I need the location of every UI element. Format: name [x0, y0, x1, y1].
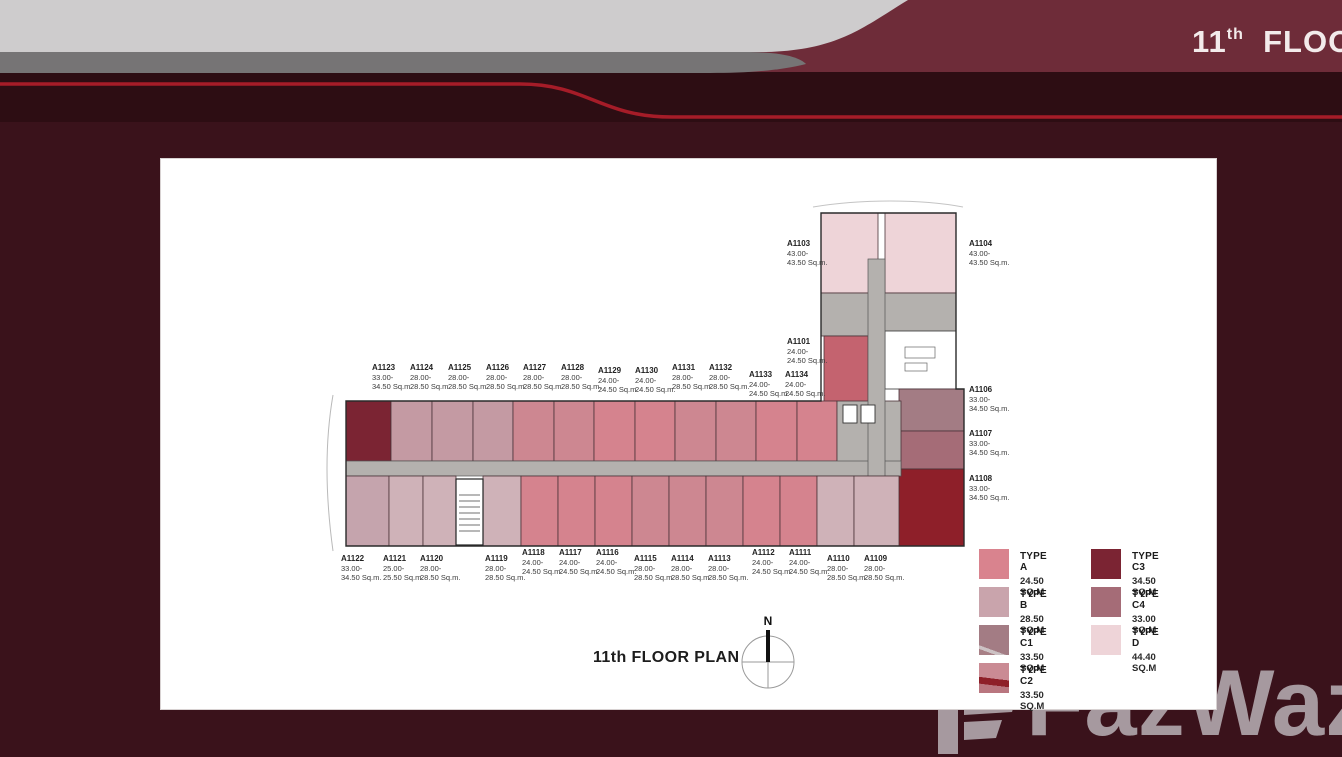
unit-label-A1107: A110733.00-34.50 Sq.m.: [969, 429, 1009, 458]
floor-suffix: th: [1227, 26, 1244, 43]
unit-label-A1112: A111224.00-24.50 Sq.m.: [752, 548, 792, 577]
corridor: [346, 461, 901, 476]
unit-label-A1132: A113228.00-28.50 Sq.m.: [709, 363, 749, 392]
stairwell: [456, 479, 483, 545]
legend-swatch: [1091, 549, 1121, 579]
unit-label-A1108: A110833.00-34.50 Sq.m.: [969, 474, 1009, 503]
unit-label-A1113: A111328.00-28.50 Sq.m.: [708, 554, 748, 583]
unit-label-A1126: A112628.00-28.50 Sq.m.: [486, 363, 526, 392]
legend-item-type-c2: TYPE C233.50 SQ.M: [979, 663, 1047, 712]
legend-swatch: [979, 587, 1009, 617]
unit-label-A1128: A112828.00-28.50 Sq.m.: [561, 363, 601, 392]
floor-word: FLOO: [1263, 24, 1342, 59]
wing-corridor: [868, 259, 885, 476]
unit-label-A1121: A112125.00-25.50 Sq.m.: [383, 554, 423, 583]
legend-swatch: [979, 625, 1009, 655]
unit-label-A1129: A112924.00-24.50 Sq.m.: [598, 366, 638, 395]
unit-label-A1111: A111124.00-24.50 Sq.m.: [789, 548, 829, 577]
floor-plan-drawing: [161, 159, 1216, 709]
unit-label-A1122: A112233.00-34.50 Sq.m.: [341, 554, 381, 583]
north-arrow: N: [733, 614, 803, 699]
unit-label-A1109: A110928.00-28.50 Sq.m.: [864, 554, 904, 583]
unit-label-A1106: A110633.00-34.50 Sq.m.: [969, 385, 1009, 414]
unit-label-A1125: A112528.00-28.50 Sq.m.: [448, 363, 488, 392]
unit-label-A1116: A111624.00-24.50 Sq.m.: [596, 548, 636, 577]
unit-label-A1120: A112028.00-28.50 Sq.m.: [420, 554, 460, 583]
unit-label-A1101: A110124.00-24.50 Sq.m.: [787, 337, 827, 366]
unit-label-A1103: A110343.00-43.50 Sq.m.: [787, 239, 827, 268]
header-light-gray-swoosh: [0, 0, 908, 52]
unit-label-A1127: A112728.00-28.50 Sq.m.: [523, 363, 563, 392]
unit-label-A1114: A111428.00-28.50 Sq.m.: [671, 554, 711, 583]
header-mid-gray-swoosh: [0, 52, 806, 73]
floor-banner-title: 11th FLOO: [1192, 24, 1342, 60]
unit-label-A1104: A110443.00-43.50 Sq.m.: [969, 239, 1009, 268]
plan-title: 11th FLOOR PLAN: [593, 649, 739, 667]
site-boundary-line-top: [813, 201, 963, 207]
legend-swatch: [979, 549, 1009, 579]
unit-label-A1124: A112428.00-28.50 Sq.m.: [410, 363, 450, 392]
legend-item-type-d: TYPE D44.40 SQ.M: [1091, 625, 1159, 674]
legend-swatch: [979, 663, 1009, 693]
unit-label-A1118: A111824.00-24.50 Sq.m.: [522, 548, 562, 577]
unit-label-A1115: A111528.00-28.50 Sq.m.: [634, 554, 674, 583]
unit-label-A1130: A113024.00-24.50 Sq.m.: [635, 366, 675, 395]
header-dark-strip: [0, 72, 1342, 122]
bottom-row-units: [346, 476, 899, 546]
legend-swatch: [1091, 625, 1121, 655]
header-banner-graphic: [0, 0, 1342, 130]
unit-label-A1131: A113128.00-28.50 Sq.m.: [672, 363, 712, 392]
unit-label-A1133: A113324.00-24.50 Sq.m.: [749, 370, 789, 399]
floor-plan-panel: A112333.00-34.50 Sq.m.A112428.00-28.50 S…: [160, 158, 1217, 710]
unit-label-A1123: A112333.00-34.50 Sq.m.: [372, 363, 412, 392]
unit-label-A1117: A111724.00-24.50 Sq.m.: [559, 548, 599, 577]
north-label: N: [733, 614, 803, 628]
floor-number: 11: [1192, 24, 1227, 59]
floor-plan-page: { "header": { "floor_number": "11", "flo…: [0, 0, 1342, 754]
site-boundary-line: [327, 395, 333, 551]
unit-label-A1134: A113424.00-24.50 Sq.m.: [785, 370, 825, 399]
unit-label-A1119: A111928.00-28.50 Sq.m.: [485, 554, 525, 583]
unit-label-A1110: A111028.00-28.50 Sq.m.: [827, 554, 867, 583]
legend-swatch: [1091, 587, 1121, 617]
